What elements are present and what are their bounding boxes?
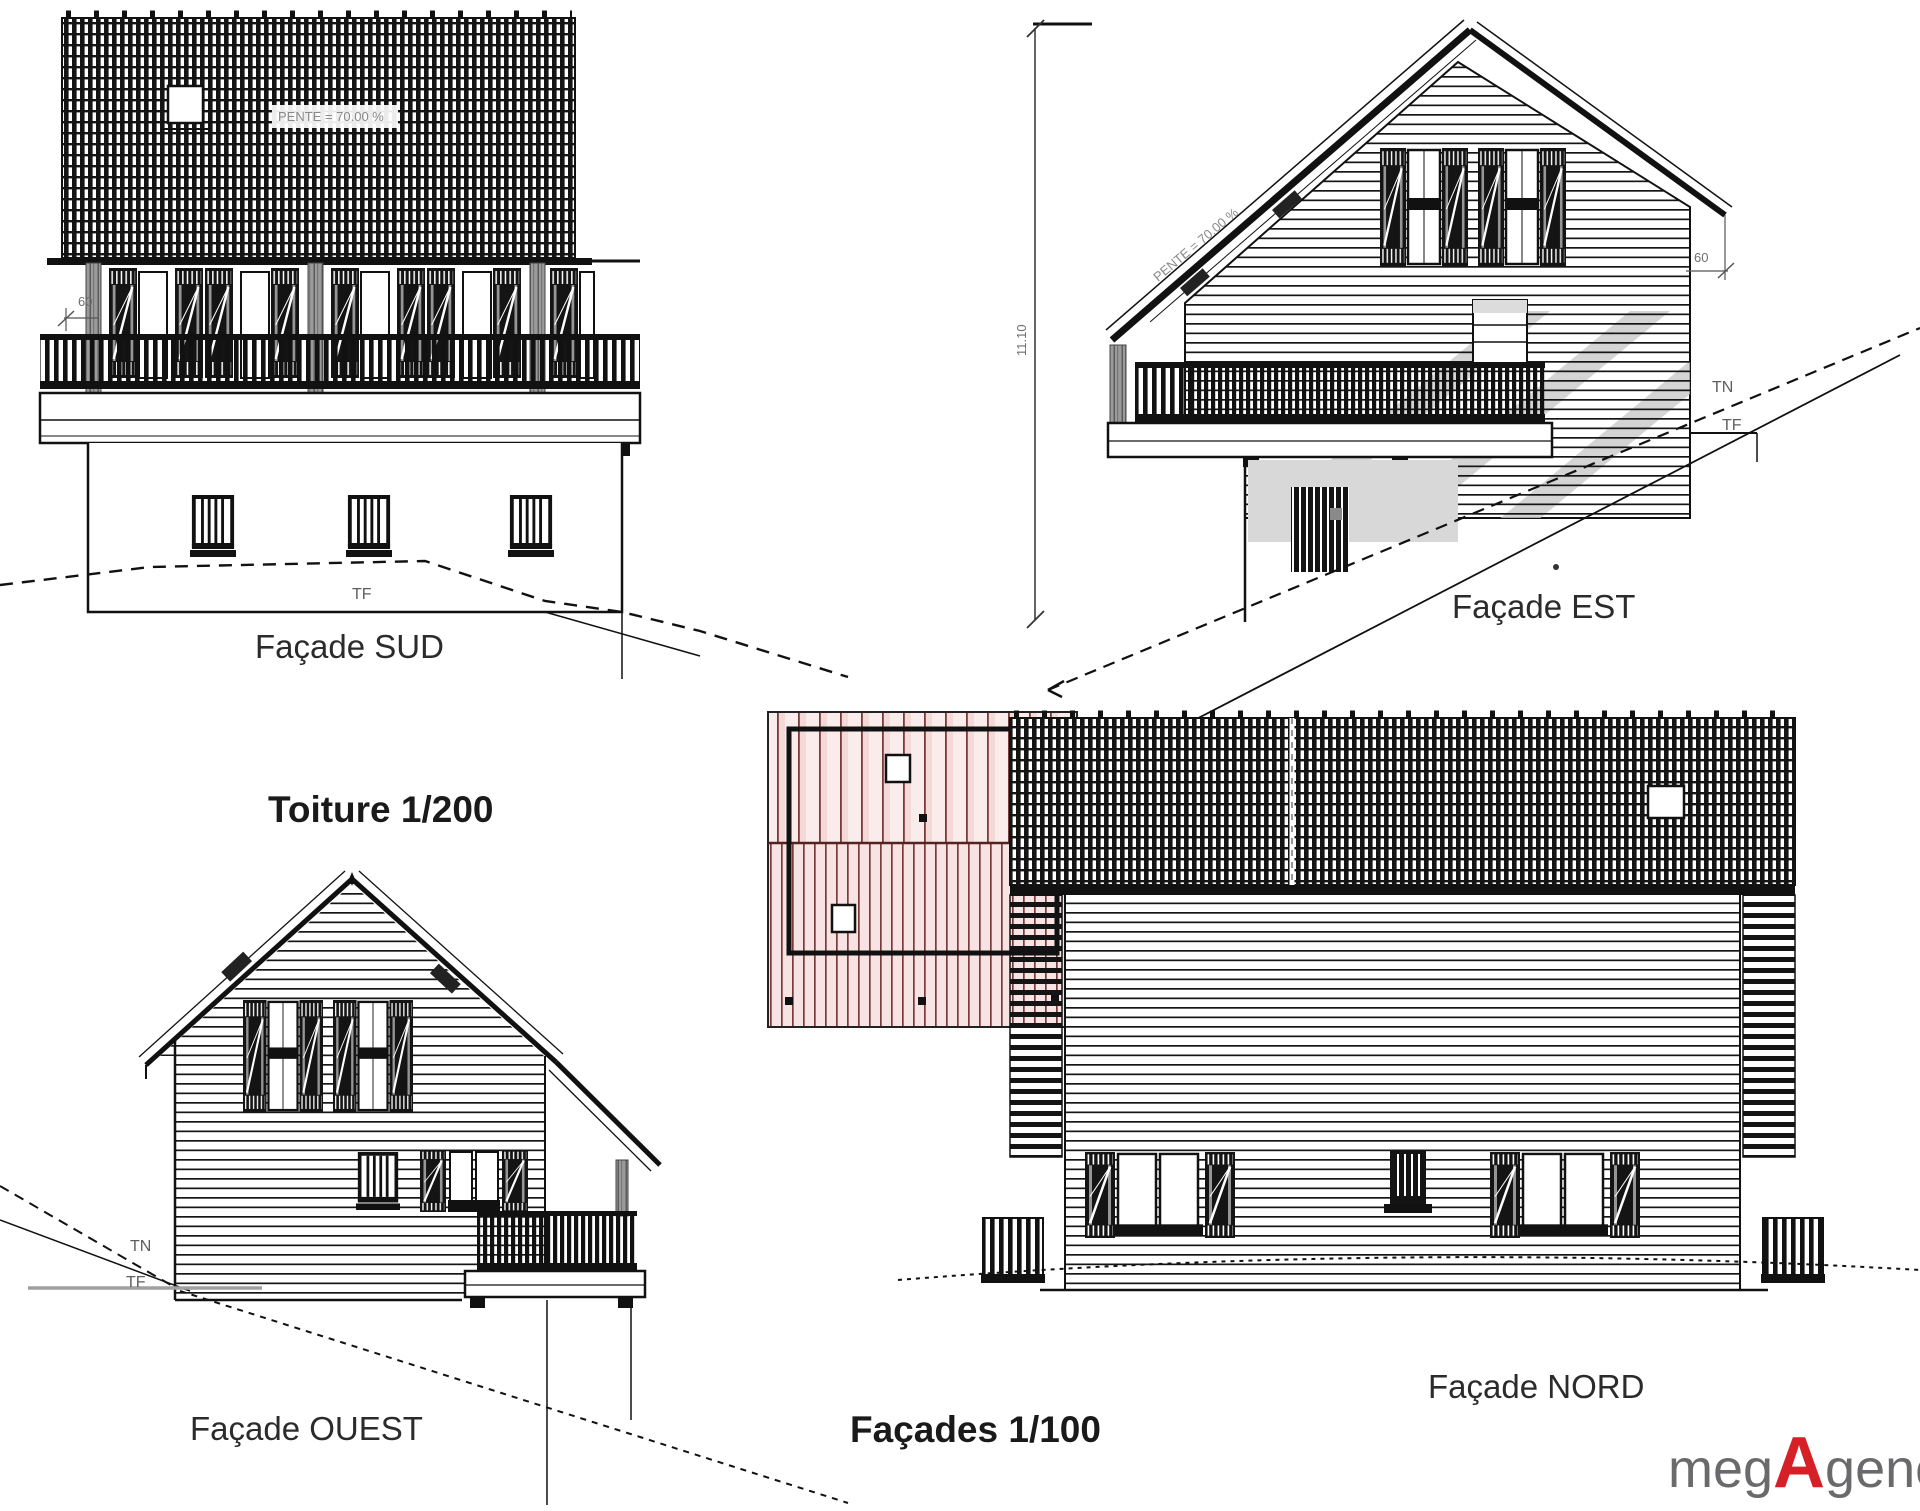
est-door: [1473, 300, 1527, 364]
est-window-left: [1380, 148, 1468, 266]
svg-text:11.10: 11.10: [1014, 324, 1029, 356]
sud-roof: PENTE = 70.00 %: [62, 18, 575, 258]
svg-text:60: 60: [78, 294, 92, 309]
facade-nord-caption: Façade NORD: [1428, 1368, 1644, 1405]
nord-railing-right: [1761, 1218, 1825, 1283]
ouest-balcony-slab: [465, 1271, 645, 1297]
sud-basement-window-3: [508, 495, 554, 557]
sud-balcony-railing: [40, 334, 640, 389]
svg-text:60: 60: [1694, 250, 1708, 265]
roof-plan-window-2: [832, 905, 855, 932]
sud-roof-slope-label: PENTE = 70.00 %: [278, 109, 384, 124]
ouest-tn-label: TN: [130, 1238, 151, 1255]
est-balcony-slab: [1108, 423, 1552, 457]
sud-tf-label: TF: [352, 586, 372, 603]
facade-est-caption: Façade EST: [1452, 588, 1635, 625]
facades-scale-label: Façades 1/100: [850, 1409, 1101, 1450]
sud-basement-window-2: [346, 495, 392, 557]
nord-roof-end-left: [1010, 895, 1062, 1157]
elevations-drawing: PENTE = 70.00 %: [0, 0, 1920, 1511]
nord-eave-board: [1010, 885, 1795, 895]
ouest-balcony-railing: [477, 1211, 637, 1271]
est-tf-label: TF: [1722, 417, 1742, 434]
logo-suffix: gence: [1825, 1439, 1920, 1499]
ouest-porch-post: [616, 1160, 628, 1216]
facade-sud-caption: Façade SUD: [255, 628, 444, 665]
architectural-drawing-sheet: PENTE = 70.00 %: [0, 0, 1920, 1511]
nord-roof-end-right: [1743, 895, 1795, 1157]
nord-window-center: [1384, 1150, 1432, 1213]
ouest-window-right: [333, 1000, 413, 1112]
sud-balcony-slab: [40, 393, 640, 443]
ouest-tf-label: TF: [126, 1274, 146, 1291]
logo-accent: A: [1773, 1423, 1825, 1503]
sud-roof-window: [168, 86, 203, 123]
facade-ouest-caption: Façade OUEST: [190, 1410, 423, 1447]
est-balcony-railing: [1135, 362, 1545, 423]
roof-plan-window-1: [886, 755, 910, 782]
est-window-right: [1478, 148, 1566, 266]
ouest-small-window: [356, 1152, 400, 1210]
logo-prefix: meg: [1668, 1439, 1773, 1499]
ouest-window-left: [243, 1000, 323, 1112]
sud-basement-window-1: [190, 495, 236, 557]
nord-roof-window: [1648, 786, 1684, 818]
nord-window-right: [1490, 1152, 1640, 1238]
nord-window-left: [1085, 1152, 1235, 1238]
nord-roof: [1010, 718, 1795, 885]
roof-plan-title: Toiture 1/200: [268, 789, 494, 830]
est-tn-label: TN: [1712, 379, 1733, 396]
